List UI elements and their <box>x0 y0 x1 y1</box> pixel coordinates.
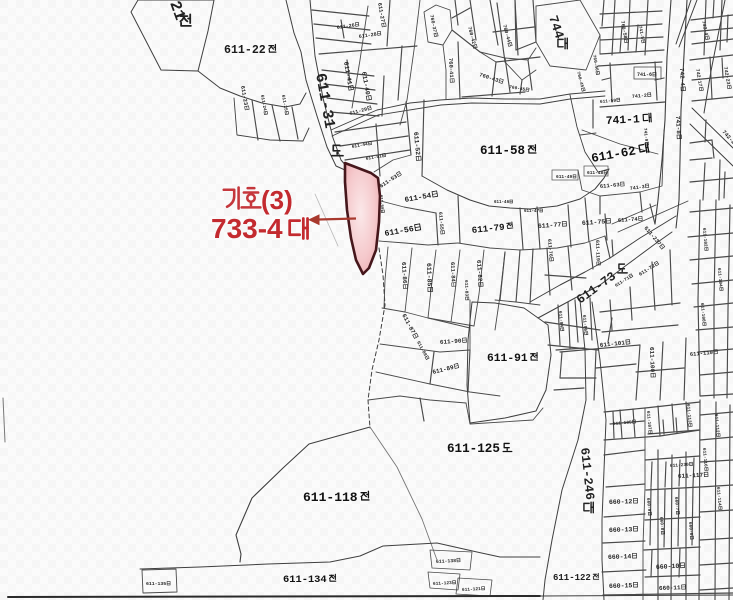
svg-text:611-58: 611-58 <box>480 144 525 158</box>
svg-text:660-8: 660-8 <box>658 517 665 531</box>
svg-text:611-86: 611-86 <box>400 262 408 284</box>
svg-text:611-46: 611-46 <box>494 201 510 205</box>
svg-text:660-15: 660-15 <box>609 582 633 590</box>
svg-text:611-121: 611-121 <box>462 586 481 593</box>
svg-text:660-12: 660-12 <box>609 498 633 506</box>
svg-text:733-4: 733-4 <box>211 213 283 244</box>
svg-text:611-135: 611-135 <box>146 581 166 587</box>
svg-text:760-41: 760-41 <box>447 58 455 79</box>
svg-text:611-49: 611-49 <box>556 174 573 180</box>
svg-text:611-119: 611-119 <box>594 240 601 261</box>
svg-text:611-118: 611-118 <box>303 490 358 505</box>
svg-text:611-84: 611-84 <box>449 262 457 283</box>
svg-text:741-8: 741-8 <box>674 116 682 135</box>
svg-text:741-6: 741-6 <box>637 72 652 78</box>
svg-text:611-47: 611-47 <box>524 210 540 214</box>
svg-text:611-85: 611-85 <box>425 263 433 287</box>
svg-text:660-14: 660-14 <box>608 553 632 561</box>
svg-text:741-1: 741-1 <box>606 114 641 128</box>
svg-text:611-117: 611-117 <box>678 472 704 480</box>
svg-text:660-9: 660-9 <box>645 498 652 512</box>
svg-text:611-134: 611-134 <box>283 574 327 586</box>
svg-text:660-7: 660-7 <box>673 497 680 511</box>
svg-text:(3): (3) <box>261 185 293 215</box>
svg-text:611-123: 611-123 <box>433 580 452 587</box>
svg-text:611-83: 611-83 <box>463 280 470 297</box>
svg-text:611-125: 611-125 <box>447 442 500 456</box>
svg-text:611-122: 611-122 <box>553 573 591 583</box>
svg-text:611-48: 611-48 <box>587 170 604 176</box>
svg-text:611-138: 611-138 <box>436 558 457 565</box>
svg-text:660-6: 660-6 <box>687 522 694 536</box>
svg-text:611-91: 611-91 <box>487 353 528 365</box>
svg-text:611-100: 611-100 <box>648 347 656 373</box>
svg-text:660-10: 660-10 <box>656 563 680 571</box>
svg-text:611-22: 611-22 <box>224 44 266 57</box>
svg-text:660-11: 660-11 <box>659 584 681 592</box>
svg-text:660-13: 660-13 <box>609 526 633 534</box>
svg-text:741-9: 741-9 <box>642 128 649 142</box>
svg-text:742-4: 742-4 <box>678 68 686 87</box>
svg-text:611-74: 611-74 <box>618 216 639 224</box>
